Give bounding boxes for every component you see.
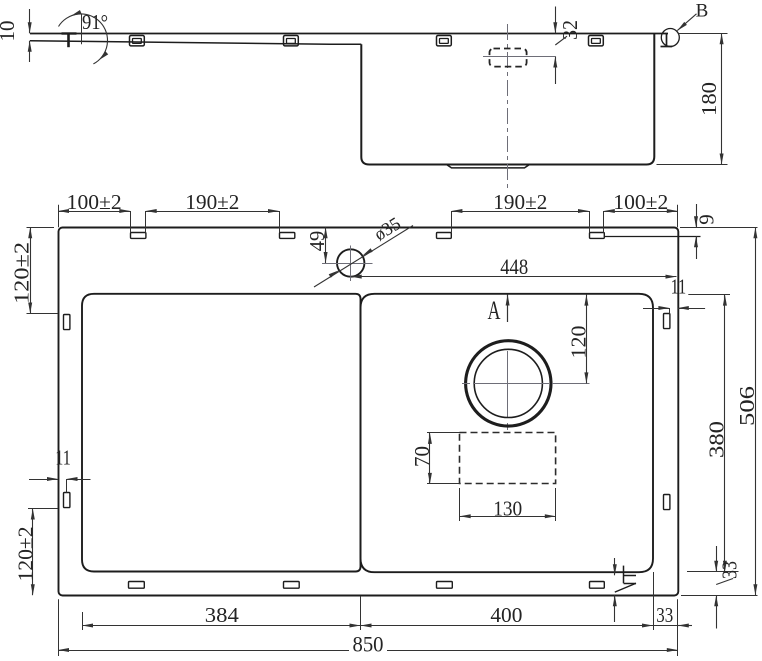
svg-text:180: 180 [697, 82, 721, 116]
svg-text:9: 9 [695, 214, 719, 225]
svg-text:70: 70 [410, 446, 434, 467]
svg-text:11: 11 [671, 275, 687, 299]
svg-text:10: 10 [0, 21, 19, 42]
svg-text:190±2: 190±2 [185, 190, 239, 214]
svg-text:120±2: 120±2 [14, 527, 38, 582]
svg-text:A: A [488, 296, 501, 325]
svg-text:384: 384 [205, 603, 240, 627]
svg-text:49: 49 [305, 231, 329, 252]
svg-text:100±2: 100±2 [613, 190, 668, 214]
svg-text:91°: 91° [82, 10, 108, 34]
svg-text:120±2: 120±2 [10, 242, 34, 304]
svg-text:506: 506 [735, 386, 759, 426]
svg-text:11: 11 [55, 446, 71, 470]
svg-text:B: B [696, 1, 709, 22]
svg-text:32: 32 [558, 20, 582, 40]
svg-text:130: 130 [493, 497, 522, 521]
svg-text:400: 400 [490, 603, 522, 627]
svg-text:100±2: 100±2 [67, 190, 122, 214]
svg-text:190±2: 190±2 [493, 190, 547, 214]
svg-text:448: 448 [500, 254, 528, 279]
svg-text:33: 33 [718, 561, 742, 579]
svg-text:850: 850 [353, 632, 384, 657]
svg-text:33: 33 [656, 603, 673, 627]
svg-text:120: 120 [567, 326, 591, 359]
svg-text:380: 380 [705, 421, 729, 458]
